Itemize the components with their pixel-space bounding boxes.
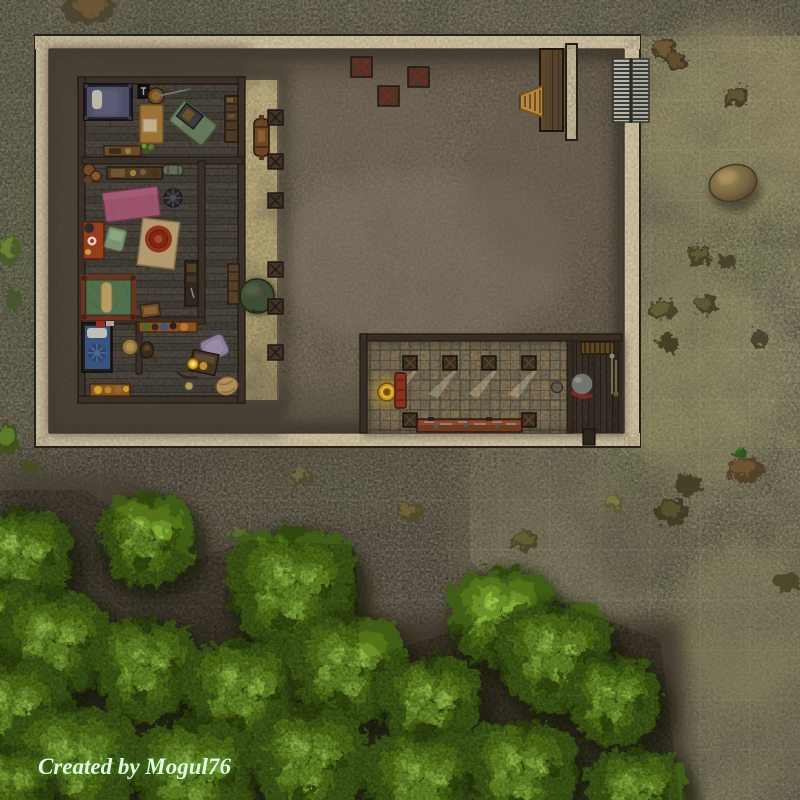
svg-text:Created by Mogul76: Created by Mogul76 (38, 754, 231, 779)
